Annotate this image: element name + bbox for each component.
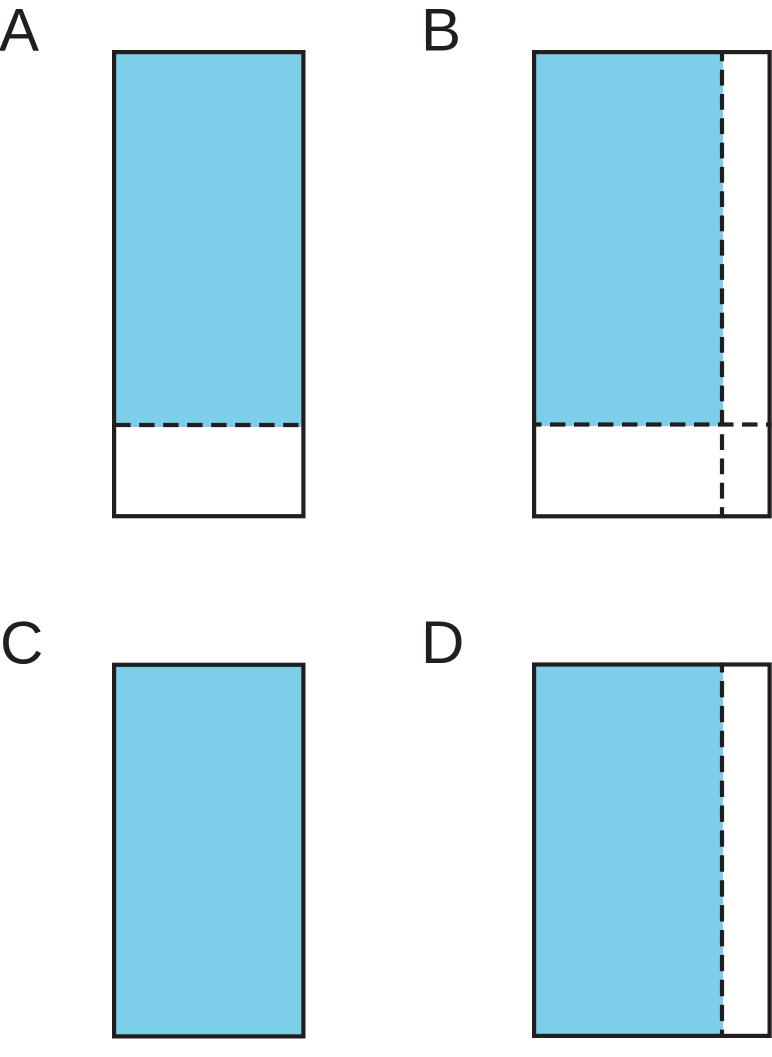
svg-text:B: B [421, 0, 461, 64]
svg-text:D: D [421, 609, 464, 676]
svg-text:C: C [0, 610, 43, 677]
svg-text:A: A [0, 0, 39, 64]
